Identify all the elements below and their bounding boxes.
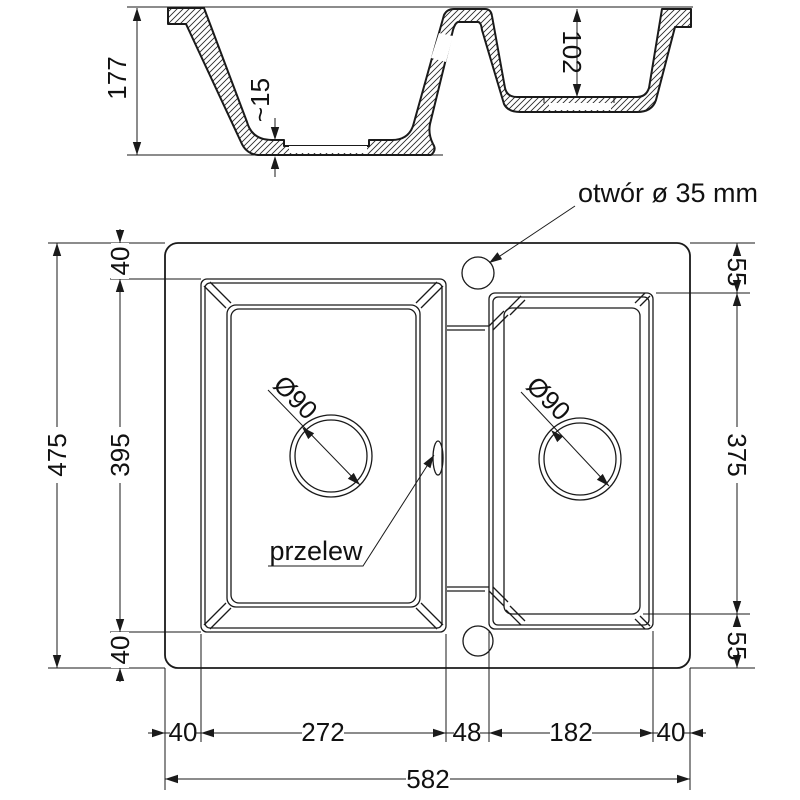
faucet-hole-label: otwór ø 35 mm: [578, 178, 758, 208]
dim-text-bowl1-width: 272: [301, 717, 344, 747]
dim-depth-total: 177: [102, 8, 141, 155]
divider-channel-edges: [447, 326, 489, 591]
faucet-hole: [462, 257, 494, 289]
dim-text-floor-thickness: ~15: [245, 78, 275, 122]
left-drain-recess: [289, 146, 367, 153]
left-bowl: [201, 279, 446, 632]
plan-view: Ø90 Ø90 otwór ø 35 mm przelew: [42, 178, 758, 794]
dimension-lines: [57, 229, 737, 779]
sink-outline: [165, 243, 690, 668]
faucet-hole-callout: otwór ø 35 mm: [487, 178, 758, 266]
dim-text-right-margin: 40: [657, 717, 686, 747]
dim-text-bowl2-width: 182: [549, 717, 592, 747]
dim-text-divider-width: 48: [453, 717, 482, 747]
right-drain: Ø90: [521, 370, 621, 500]
dim-text-total-height: 475: [42, 433, 72, 476]
section-view: 177 ~15 102: [102, 7, 693, 177]
right-bowl-step-chamfers: [489, 296, 525, 625]
right-bowl-corner-chamfers: [635, 293, 650, 629]
dim-text-left-margin: 40: [169, 717, 198, 747]
left-bowl-corner-chamfers: [204, 282, 443, 629]
drawing-canvas: 177 ~15 102: [0, 0, 800, 800]
dim-text-right-drain: Ø90: [521, 370, 577, 426]
dim-text-bowl2-bottom-margin: 55: [722, 632, 752, 661]
dim-text-bottom-margin: 40: [105, 636, 135, 665]
dim-text-bowl2-top-margin: 55: [722, 258, 752, 287]
dimension-arrows: [53, 230, 741, 783]
right-bowl: [447, 293, 653, 629]
dim-text-bowl2-height: 375: [722, 433, 752, 476]
dim-text-left-drain: Ø90: [268, 369, 324, 425]
dim-text-total-width: 582: [406, 764, 449, 794]
dim-bowl2-depth: 102: [557, 9, 587, 97]
left-drain: Ø90: [268, 369, 372, 497]
overflow-callout: przelew: [268, 453, 438, 566]
dim-text-bowl2-depth: 102: [557, 30, 587, 73]
dim-text-top-margin: 40: [105, 247, 135, 276]
right-drain-recess: [549, 103, 611, 110]
overflow-label: przelew: [269, 536, 363, 566]
dim-text-bowl1-height: 395: [105, 433, 135, 476]
sink-technical-drawing: 177 ~15 102: [0, 0, 800, 800]
dim-text-depth-total: 177: [102, 56, 132, 99]
